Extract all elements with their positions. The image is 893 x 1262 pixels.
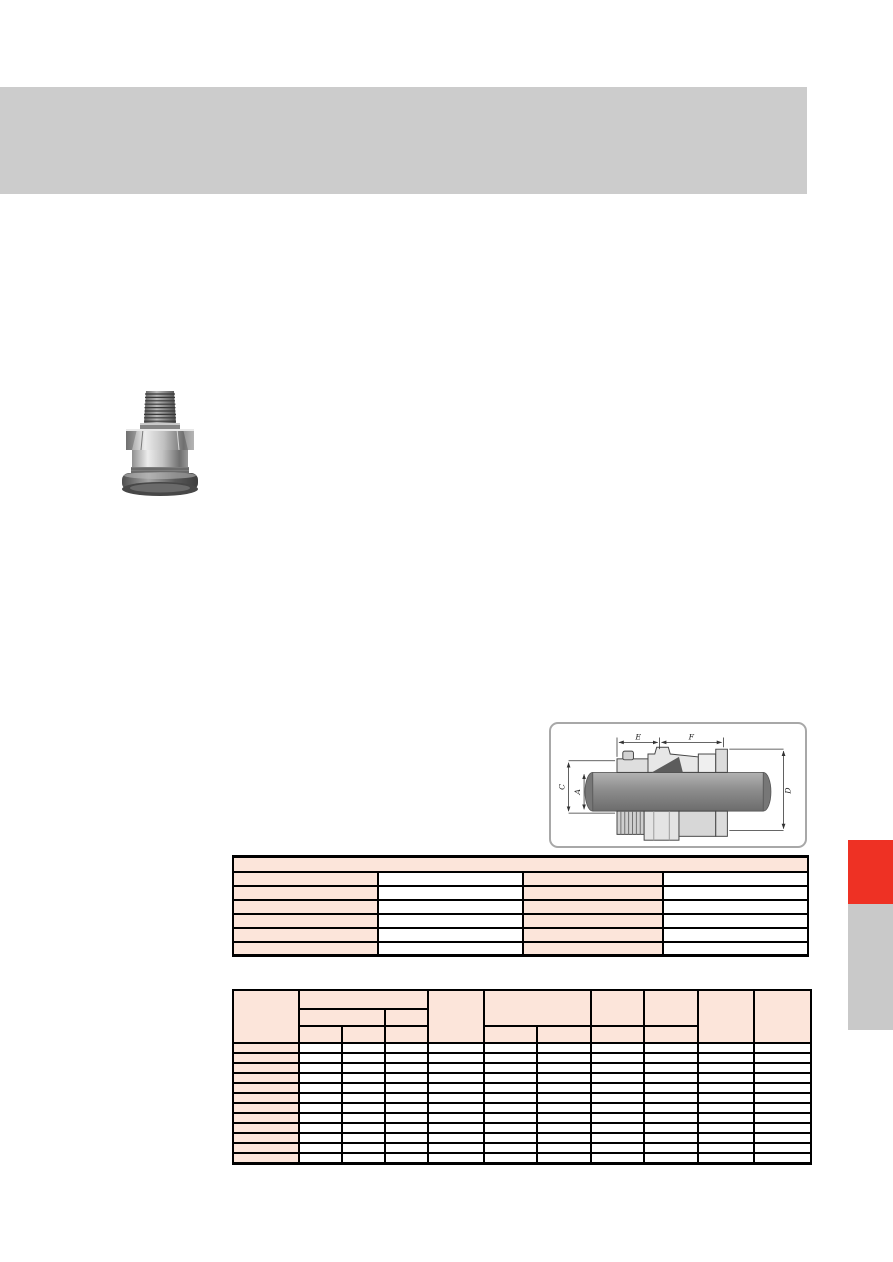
value-cell [378, 886, 523, 900]
value-cell [644, 1083, 698, 1093]
row-label-cell [233, 1103, 299, 1113]
table-row [233, 1123, 811, 1133]
hdr-col-11 [754, 990, 811, 1043]
value-cell [484, 1153, 537, 1163]
value-cell [698, 1083, 754, 1093]
value-cell [537, 1113, 591, 1123]
value-cell [754, 1053, 811, 1063]
value-cell [342, 1113, 385, 1123]
value-cell [342, 1153, 385, 1163]
row-label-cell [233, 1073, 299, 1083]
value-cell [342, 1073, 385, 1083]
value-cell [698, 1113, 754, 1123]
value-cell [537, 1093, 591, 1103]
table-row [233, 928, 808, 942]
hdr-col-5 [428, 990, 484, 1043]
value-cell [299, 1043, 342, 1053]
value-cell [591, 1093, 644, 1103]
value-cell [484, 1063, 537, 1073]
value-cell [754, 1153, 811, 1163]
value-cell [591, 1053, 644, 1063]
table-row [233, 1073, 811, 1083]
value-cell [754, 1113, 811, 1123]
value-cell [378, 900, 523, 914]
row-label-cell [233, 942, 378, 956]
value-cell [644, 1053, 698, 1063]
value-cell [698, 1093, 754, 1103]
value-cell [537, 1073, 591, 1083]
value-cell [644, 1113, 698, 1123]
value-cell [299, 1103, 342, 1113]
value-cell [537, 1143, 591, 1153]
value-cell [385, 1103, 428, 1113]
spec-table-section [232, 855, 809, 957]
dim-label-c: C [558, 784, 567, 790]
value-cell [591, 1043, 644, 1053]
dimension-diagram: E F C A D [549, 722, 807, 848]
value-cell [644, 1063, 698, 1073]
value-cell [698, 1053, 754, 1063]
value-cell [299, 1093, 342, 1103]
value-cell [385, 1063, 428, 1073]
value-cell [378, 928, 523, 942]
value-cell [754, 1123, 811, 1133]
value-cell [698, 1123, 754, 1133]
value-cell [428, 1053, 484, 1063]
table-row [233, 1103, 811, 1113]
value-cell [428, 1113, 484, 1123]
value-cell [484, 1113, 537, 1123]
value-cell [663, 900, 808, 914]
hdr-sub-col-9 [644, 1026, 698, 1043]
row-label-cell [233, 1083, 299, 1093]
value-cell [663, 872, 808, 886]
value-cell [591, 1153, 644, 1163]
row-label-cell [523, 914, 663, 928]
cable-body [593, 772, 763, 811]
value-cell [591, 1143, 644, 1153]
value-cell [385, 1143, 428, 1153]
value-cell [299, 1113, 342, 1123]
value-cell [591, 1103, 644, 1113]
value-cell [385, 1093, 428, 1103]
value-cell [537, 1123, 591, 1133]
row-label-cell [523, 872, 663, 886]
hdr-sub-col-3 [342, 1026, 385, 1043]
value-cell [537, 1153, 591, 1163]
value-cell [342, 1043, 385, 1053]
table-row [233, 1113, 811, 1123]
row-label-cell [233, 914, 378, 928]
cable-gland-image [113, 388, 205, 498]
value-cell [428, 1073, 484, 1083]
hdr-col-8 [591, 990, 644, 1026]
table-row [233, 1053, 811, 1063]
gland-body-top [617, 747, 727, 772]
table-row [233, 1083, 811, 1093]
value-cell [378, 942, 523, 956]
value-cell [342, 1103, 385, 1113]
value-cell [342, 1063, 385, 1073]
row-label-cell [233, 1153, 299, 1163]
value-cell [663, 914, 808, 928]
value-cell [663, 942, 808, 956]
row-label-cell [233, 886, 378, 900]
value-cell [385, 1123, 428, 1133]
value-cell [591, 1073, 644, 1083]
spec-header-band [233, 857, 808, 872]
hdr-col-10 [698, 990, 754, 1043]
section-tab-red [848, 840, 893, 904]
row-label-cell [233, 1123, 299, 1133]
value-cell [428, 1103, 484, 1113]
value-cell [428, 1143, 484, 1153]
value-cell [342, 1143, 385, 1153]
product-photo [113, 388, 205, 498]
dim-label-e: E [634, 732, 641, 741]
value-cell [537, 1103, 591, 1113]
value-cell [644, 1093, 698, 1103]
row-label-cell [233, 1113, 299, 1123]
value-cell [754, 1063, 811, 1073]
hdr-sub-col-4b [385, 1026, 428, 1043]
row-label-cell [523, 942, 663, 956]
value-cell [754, 1073, 811, 1083]
value-cell [484, 1043, 537, 1053]
dim-label-f: F [688, 732, 695, 741]
value-cell [644, 1153, 698, 1163]
value-cell [537, 1043, 591, 1053]
table-row [233, 1143, 811, 1153]
hdr-size-col [233, 990, 299, 1043]
value-cell [698, 1143, 754, 1153]
value-cell [644, 1073, 698, 1083]
value-cell [644, 1143, 698, 1153]
value-cell [342, 1133, 385, 1143]
value-cell [754, 1043, 811, 1053]
value-cell [484, 1123, 537, 1133]
table-row [233, 1153, 811, 1163]
table-row [233, 1133, 811, 1143]
catalog-page: E F C A D [0, 0, 893, 1262]
value-cell [299, 1063, 342, 1073]
value-cell [698, 1103, 754, 1113]
hdr-sub-col-6 [484, 1026, 537, 1043]
value-cell [342, 1083, 385, 1093]
dimension-table-header [233, 990, 811, 1043]
row-label-cell [233, 1093, 299, 1103]
value-cell [428, 1043, 484, 1053]
value-cell [385, 1053, 428, 1063]
value-cell [299, 1083, 342, 1093]
section-tab-gray [848, 904, 893, 1030]
hdr-sub-col-7 [537, 1026, 591, 1043]
value-cell [484, 1103, 537, 1113]
table-row [233, 942, 808, 956]
value-cell [428, 1153, 484, 1163]
value-cell [428, 1123, 484, 1133]
value-cell [698, 1063, 754, 1073]
row-label-cell [233, 872, 378, 886]
row-label-cell [523, 886, 663, 900]
hdr-sub-col-4 [385, 1009, 428, 1026]
value-cell [484, 1143, 537, 1153]
value-cell [644, 1133, 698, 1143]
row-label-cell [233, 900, 378, 914]
value-cell [754, 1143, 811, 1153]
value-cell [484, 1083, 537, 1093]
value-cell [484, 1093, 537, 1103]
value-cell [591, 1113, 644, 1123]
spec-table-header [233, 857, 808, 872]
value-cell [591, 1083, 644, 1093]
value-cell [299, 1123, 342, 1133]
value-cell [484, 1053, 537, 1063]
hdr-col-9 [644, 990, 698, 1026]
value-cell [428, 1063, 484, 1073]
value-cell [698, 1073, 754, 1083]
hdr-sub-col-8 [591, 1026, 644, 1043]
value-cell [342, 1053, 385, 1063]
value-cell [754, 1103, 811, 1113]
value-cell [299, 1153, 342, 1163]
value-cell [698, 1043, 754, 1053]
dim-label-a: A [573, 789, 582, 796]
table-row [233, 900, 808, 914]
row-label-cell [233, 1063, 299, 1073]
value-cell [378, 914, 523, 928]
row-label-cell [233, 928, 378, 942]
value-cell [428, 1133, 484, 1143]
value-cell [537, 1053, 591, 1063]
table-row [233, 1043, 811, 1053]
hdr-sub-group [299, 1009, 385, 1026]
value-cell [754, 1133, 811, 1143]
value-cell [644, 1123, 698, 1133]
spec-table [232, 855, 809, 957]
table-row [233, 1093, 811, 1103]
value-cell [299, 1133, 342, 1143]
value-cell [385, 1113, 428, 1123]
row-label-cell [233, 1053, 299, 1063]
value-cell [342, 1123, 385, 1133]
value-cell [299, 1143, 342, 1153]
table-row [233, 914, 808, 928]
table-row [233, 1063, 811, 1073]
dimension-table [232, 989, 812, 1165]
row-label-cell [233, 1143, 299, 1153]
value-cell [644, 1043, 698, 1053]
hdr-sub-col-2 [299, 1026, 342, 1043]
value-cell [644, 1103, 698, 1113]
value-cell [754, 1083, 811, 1093]
value-cell [299, 1073, 342, 1083]
gland-body-bottom [617, 811, 727, 840]
title-banner [0, 87, 807, 194]
dim-label-d: D [783, 787, 792, 795]
value-cell [342, 1093, 385, 1103]
table-row [233, 872, 808, 886]
table-row [233, 886, 808, 900]
value-cell [428, 1093, 484, 1103]
value-cell [385, 1073, 428, 1083]
value-cell [663, 928, 808, 942]
value-cell [484, 1133, 537, 1143]
value-cell [385, 1043, 428, 1053]
value-cell [378, 872, 523, 886]
row-label-cell [233, 1043, 299, 1053]
value-cell [484, 1073, 537, 1083]
value-cell [698, 1133, 754, 1143]
value-cell [537, 1133, 591, 1143]
value-cell [754, 1093, 811, 1103]
value-cell [537, 1063, 591, 1073]
value-cell [663, 886, 808, 900]
value-cell [428, 1083, 484, 1093]
value-cell [385, 1083, 428, 1093]
value-cell [385, 1153, 428, 1163]
value-cell [385, 1133, 428, 1143]
value-cell [591, 1133, 644, 1143]
row-label-cell [523, 900, 663, 914]
row-label-cell [233, 1133, 299, 1143]
value-cell [537, 1083, 591, 1093]
row-label-cell [523, 928, 663, 942]
value-cell [698, 1153, 754, 1163]
value-cell [591, 1123, 644, 1133]
value-cell [299, 1053, 342, 1063]
hdr-group-2 [484, 990, 591, 1026]
dimension-table-section [232, 989, 812, 1165]
value-cell [591, 1063, 644, 1073]
hdr-group-1 [299, 990, 428, 1009]
